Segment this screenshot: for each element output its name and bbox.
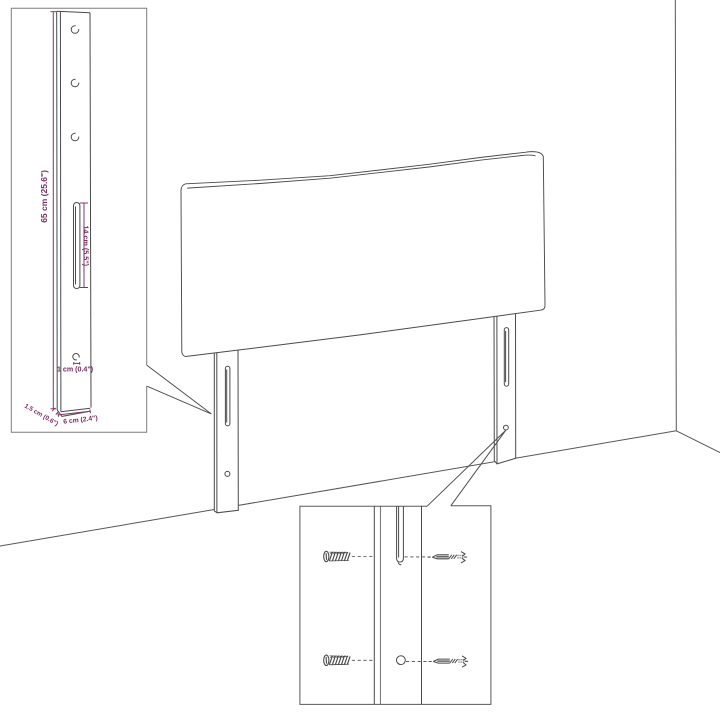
- svg-text:65 cm (25.6"): 65 cm (25.6"): [39, 170, 49, 223]
- svg-text:1 cm (0.4"): 1 cm (0.4"): [57, 366, 94, 374]
- svg-text:14 cm (5.5"): 14 cm (5.5"): [82, 226, 91, 267]
